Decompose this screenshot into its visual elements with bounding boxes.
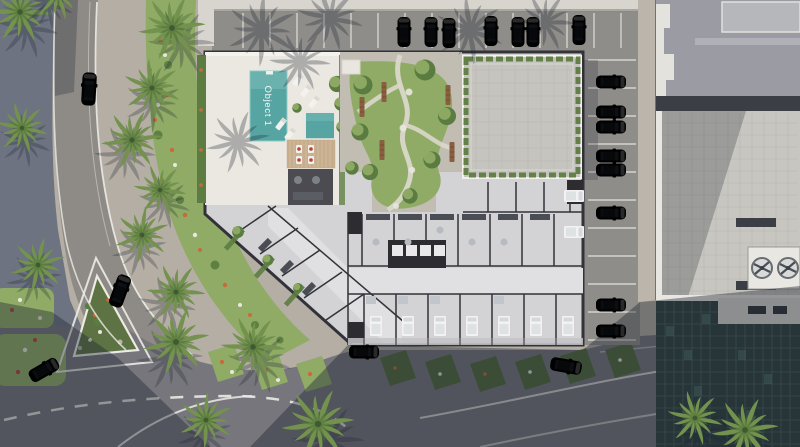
roof-section	[463, 56, 581, 178]
car-driving	[80, 72, 98, 106]
roof-shadow-east	[583, 60, 598, 180]
car	[572, 15, 587, 45]
rooftop-fan	[778, 258, 798, 278]
car	[596, 298, 626, 313]
car	[442, 18, 457, 48]
car-parked	[349, 345, 379, 360]
car	[596, 324, 626, 339]
car	[526, 17, 541, 47]
car	[596, 120, 626, 135]
site-plan-render: Object 1	[0, 0, 800, 447]
car	[596, 105, 626, 120]
building-label: Object 1	[262, 86, 273, 127]
roof-vent	[736, 218, 776, 227]
pool-deck: Object 1	[197, 52, 348, 205]
car	[596, 149, 626, 164]
pergola-terrace	[286, 139, 336, 169]
deck-hedge	[197, 55, 206, 203]
pool-ladder	[266, 71, 273, 75]
car	[596, 75, 626, 90]
car	[596, 163, 626, 178]
garden-canopy	[342, 60, 360, 74]
car	[397, 17, 412, 47]
balcony-band	[348, 338, 583, 345]
car	[511, 17, 526, 47]
car	[596, 206, 626, 221]
car	[424, 17, 439, 47]
rooftop-fan	[752, 258, 772, 278]
roof-gap-strip	[656, 96, 800, 111]
car	[484, 16, 499, 46]
screenshot-root: Object 1	[0, 0, 800, 447]
service-roof-block	[288, 169, 333, 205]
